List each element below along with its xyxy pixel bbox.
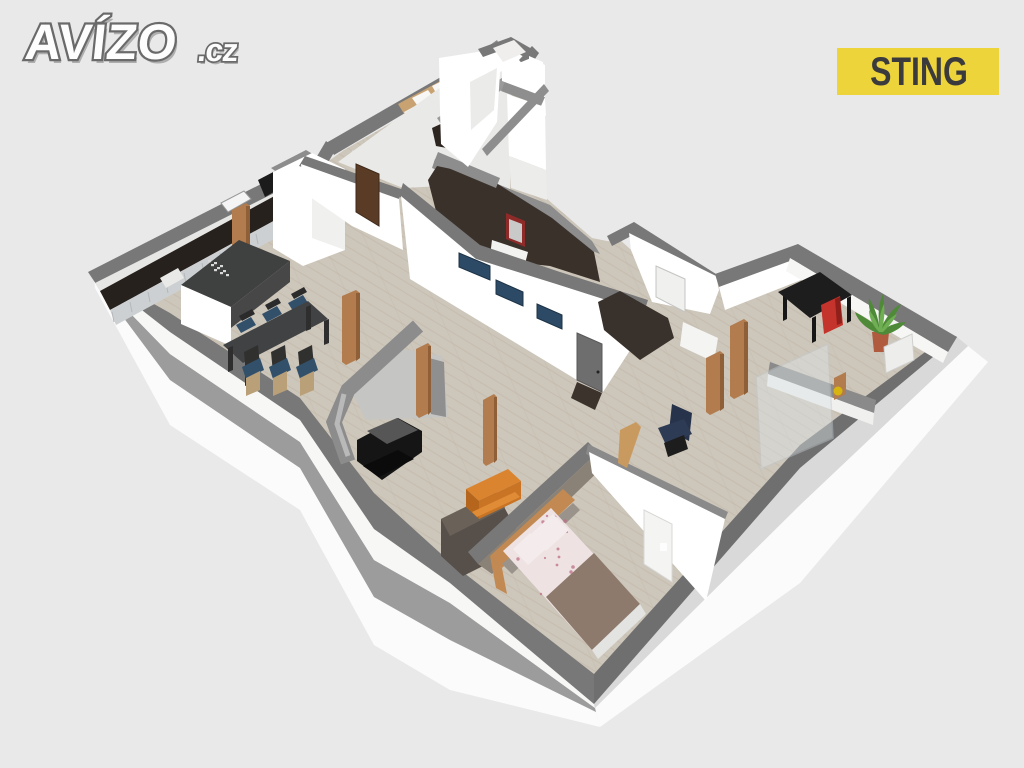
svg-text:STING: STING (870, 49, 968, 94)
svg-text:.cz: .cz (196, 32, 239, 68)
svg-text:AVÍZO: AVÍZO (23, 14, 180, 70)
